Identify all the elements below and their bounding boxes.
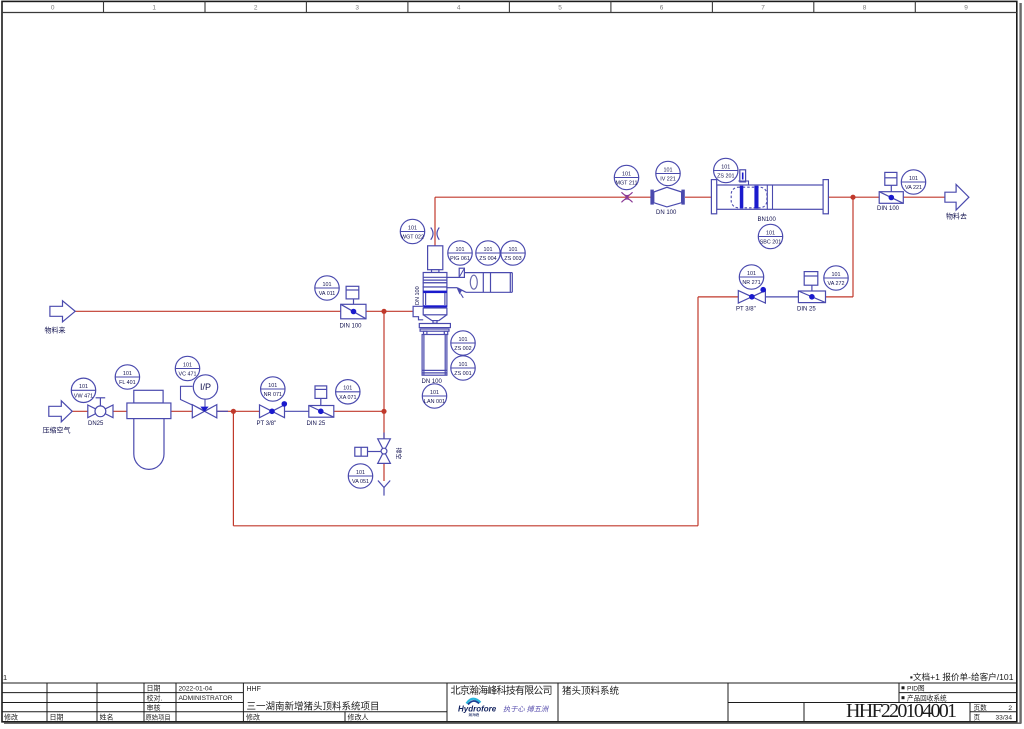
svg-text:DN 100: DN 100 (656, 210, 677, 216)
svg-text:XA 071: XA 071 (339, 395, 356, 401)
svg-text:日期: 日期 (147, 685, 161, 693)
svg-text:姓名: 姓名 (100, 713, 114, 722)
svg-text:9: 9 (964, 5, 968, 12)
svg-text:1: 1 (3, 673, 7, 682)
svg-text:ZS 201: ZS 201 (717, 174, 734, 180)
svg-text:修改人: 修改人 (348, 713, 369, 722)
svg-text:PT 3/8": PT 3/8" (736, 307, 756, 313)
svg-text:101: 101 (747, 271, 756, 277)
svg-text:IV 221: IV 221 (660, 177, 676, 183)
svg-text:101: 101 (79, 384, 88, 390)
svg-text:VW 471: VW 471 (74, 394, 93, 400)
svg-text:瀚海峰: 瀚海峰 (469, 712, 480, 717)
svg-text:FL 401: FL 401 (119, 380, 136, 386)
svg-text:ADMINISTRATOR: ADMINISTRATOR (179, 695, 233, 702)
svg-text:2: 2 (1008, 705, 1012, 712)
svg-text:3: 3 (355, 5, 359, 12)
svg-text:ZS 001: ZS 001 (454, 371, 471, 377)
svg-text:101: 101 (408, 225, 417, 231)
svg-text:101: 101 (183, 362, 192, 368)
svg-text:I/P: I/P (200, 382, 211, 392)
svg-text:101: 101 (356, 470, 365, 476)
svg-text:PT 3/8": PT 3/8" (257, 421, 277, 427)
svg-text:物料去: 物料去 (946, 212, 967, 221)
svg-text:101: 101 (459, 362, 468, 368)
svg-text:101: 101 (909, 176, 918, 182)
svg-text:101: 101 (664, 167, 673, 173)
svg-text:101: 101 (766, 230, 775, 236)
svg-text:1: 1 (152, 5, 156, 12)
svg-text:101: 101 (459, 337, 468, 343)
svg-text:北京瀚海峰科技有限公司: 北京瀚海峰科技有限公司 (451, 684, 553, 697)
svg-text:VA 011: VA 011 (319, 291, 336, 297)
svg-text:三一湖南新增猪头顶料系统项目: 三一湖南新增猪头顶料系统项目 (247, 700, 380, 712)
svg-text:NR 071: NR 071 (264, 392, 282, 398)
svg-text:LAN 001: LAN 001 (424, 399, 445, 405)
svg-text:DN25: DN25 (88, 421, 104, 427)
svg-text:2: 2 (254, 5, 258, 12)
svg-text:VA 221: VA 221 (905, 185, 922, 191)
svg-text:8: 8 (863, 5, 867, 12)
svg-text:VA 051: VA 051 (352, 479, 369, 485)
svg-text:101: 101 (123, 371, 132, 377)
svg-text:猪头顶料系统: 猪头顶料系统 (562, 685, 620, 697)
svg-text:日期: 日期 (50, 714, 64, 722)
svg-text:NR 271: NR 271 (742, 280, 760, 286)
svg-text:MGT 211: MGT 211 (616, 181, 638, 187)
svg-text:校对.: 校对. (147, 693, 163, 702)
svg-text:VC 471: VC 471 (179, 372, 197, 378)
svg-text:修改: 修改 (246, 713, 260, 722)
svg-text:0: 0 (51, 5, 55, 12)
svg-text:VA 272: VA 272 (828, 281, 845, 287)
svg-text:排空: 排空 (395, 448, 403, 460)
svg-text:页: 页 (974, 714, 981, 722)
svg-text:101: 101 (622, 171, 631, 177)
svg-text:101: 101 (484, 247, 493, 253)
svg-text:压缩空气: 压缩空气 (43, 426, 71, 435)
svg-text:PID图: PID图 (907, 685, 925, 693)
svg-text:审核: 审核 (147, 703, 161, 712)
svg-text:HHF220104001: HHF220104001 (846, 700, 957, 722)
svg-text:BN100: BN100 (758, 217, 777, 223)
svg-text:DIN 25: DIN 25 (797, 307, 816, 313)
svg-text:▪文档+1 报价单-给客户/101: ▪文档+1 报价单-给客户/101 (910, 671, 1014, 682)
svg-text:原始项目: 原始项目 (146, 713, 171, 722)
svg-text:6: 6 (660, 5, 664, 12)
svg-text:ZS 003: ZS 003 (504, 256, 521, 262)
svg-text:4: 4 (457, 5, 461, 12)
svg-text:ZS 002: ZS 002 (454, 346, 471, 352)
svg-text:SBC 201: SBC 201 (760, 240, 782, 246)
svg-text:DIN 100: DIN 100 (340, 324, 363, 330)
svg-text:101: 101 (721, 164, 730, 170)
svg-text:PIG 061: PIG 061 (450, 256, 470, 262)
svg-text:页数: 页数 (974, 703, 988, 712)
svg-text:HHF: HHF (247, 686, 261, 693)
svg-text:2022-01-04: 2022-01-04 (179, 685, 213, 692)
svg-text:101: 101 (343, 386, 352, 392)
svg-text:DIN 100: DIN 100 (877, 206, 900, 212)
svg-text:101: 101 (430, 390, 439, 396)
svg-text:101: 101 (509, 247, 518, 253)
svg-text:执于心 搏五洲: 执于心 搏五洲 (503, 705, 550, 714)
svg-text:DN 100: DN 100 (415, 286, 421, 305)
svg-text:5: 5 (558, 5, 562, 12)
svg-text:101: 101 (268, 383, 277, 389)
svg-text:7: 7 (761, 5, 765, 12)
svg-text:101: 101 (323, 282, 332, 288)
svg-text:修改: 修改 (4, 713, 18, 722)
svg-text:101: 101 (832, 272, 841, 278)
svg-text:33/34: 33/34 (995, 715, 1012, 722)
svg-text:101: 101 (456, 247, 465, 253)
svg-text:物料来: 物料来 (45, 326, 66, 335)
svg-text:WGT 022: WGT 022 (401, 235, 424, 241)
svg-text:DIN 25: DIN 25 (307, 421, 326, 427)
svg-text:ZS 004: ZS 004 (479, 256, 496, 262)
